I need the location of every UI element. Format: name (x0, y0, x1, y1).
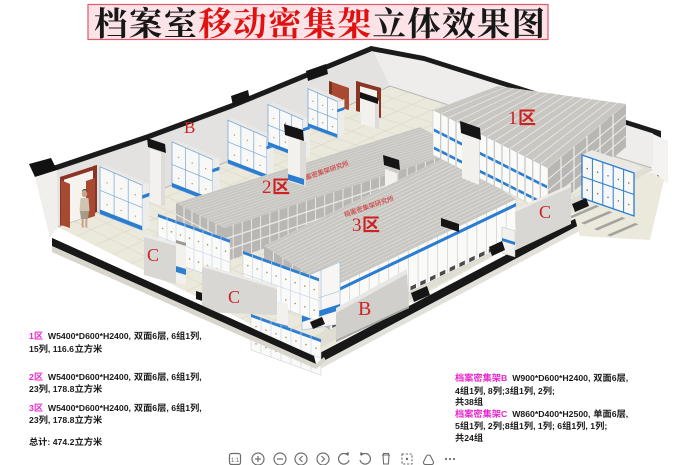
svg-text:1: 1 (185, 331, 190, 341)
svg-text:C: C (501, 409, 508, 419)
svg-text:1: 1 (571, 421, 576, 431)
svg-text:23: 23 (29, 415, 39, 425)
svg-text:,: , (199, 331, 201, 341)
svg-text:: 474.2: : 474.2 (47, 437, 74, 447)
svg-text:; 6: ; 6 (552, 421, 562, 431)
svg-text:38: 38 (464, 397, 474, 407)
svg-text:;3: ;3 (502, 386, 510, 396)
svg-text:23: 23 (29, 384, 39, 394)
svg-text:2: 2 (262, 177, 272, 198)
svg-text:W860*D400*H2500,: W860*D400*H2500, (512, 409, 590, 419)
svg-text:4: 4 (455, 386, 460, 396)
svg-text:1: 1 (469, 421, 474, 431)
svg-text:B: B (358, 298, 371, 320)
svg-text:3: 3 (29, 403, 34, 413)
svg-text:, 1: , 1 (533, 421, 543, 431)
svg-text:1: 1 (519, 386, 524, 396)
svg-text:6: 6 (612, 373, 617, 383)
svg-text:1: 1 (469, 386, 474, 396)
svg-text:C: C (539, 202, 551, 222)
svg-text:1: 1 (29, 331, 34, 341)
svg-text:6: 6 (612, 409, 617, 419)
svg-text:W5400*D600*H2400,: W5400*D600*H2400, (48, 331, 131, 341)
svg-text:;8: ;8 (502, 421, 510, 431)
svg-text:, 178.8: , 178.8 (48, 384, 75, 394)
svg-text:, 2: , 2 (533, 386, 543, 396)
svg-text:, 6: , 6 (166, 331, 176, 341)
svg-text:,: , (626, 409, 628, 419)
svg-text:B: B (184, 118, 195, 137)
svg-text:;: ; (604, 421, 607, 431)
svg-text:W5400*D600*H2400,: W5400*D600*H2400, (48, 403, 131, 413)
svg-text:C: C (147, 245, 159, 265)
svg-text:B: B (501, 373, 507, 383)
svg-text:1: 1 (185, 403, 190, 413)
svg-text:2: 2 (29, 372, 34, 382)
svg-text:1: 1 (508, 108, 518, 129)
svg-text:1: 1 (185, 372, 190, 382)
svg-text:5: 5 (455, 421, 460, 431)
svg-text:, 1: , 1 (585, 421, 595, 431)
svg-text:1: 1 (519, 421, 524, 431)
svg-text:6: 6 (152, 331, 157, 341)
svg-text:6: 6 (152, 372, 157, 382)
svg-text:, 8: , 8 (483, 386, 493, 396)
svg-text:1:1: 1:1 (231, 458, 240, 464)
svg-text:,: , (626, 373, 628, 383)
svg-text:, 2: , 2 (483, 421, 493, 431)
svg-text:6: 6 (152, 403, 157, 413)
svg-text:3: 3 (352, 215, 362, 236)
svg-text:;: ; (552, 386, 555, 396)
svg-text:, 6: , 6 (166, 403, 176, 413)
svg-text:, 116.6: , 116.6 (48, 344, 74, 354)
svg-text:,: , (199, 403, 201, 413)
svg-text:24: 24 (464, 433, 474, 443)
svg-text:,: , (199, 372, 201, 382)
svg-text:W900*D600*H2400,: W900*D600*H2400, (512, 373, 590, 383)
svg-text:, 178.8: , 178.8 (48, 415, 75, 425)
svg-text:, 6: , 6 (166, 372, 176, 382)
svg-text:15: 15 (29, 344, 39, 354)
svg-text:C: C (228, 287, 240, 307)
svg-text:W5400*D600*H2400,: W5400*D600*H2400, (48, 372, 131, 382)
